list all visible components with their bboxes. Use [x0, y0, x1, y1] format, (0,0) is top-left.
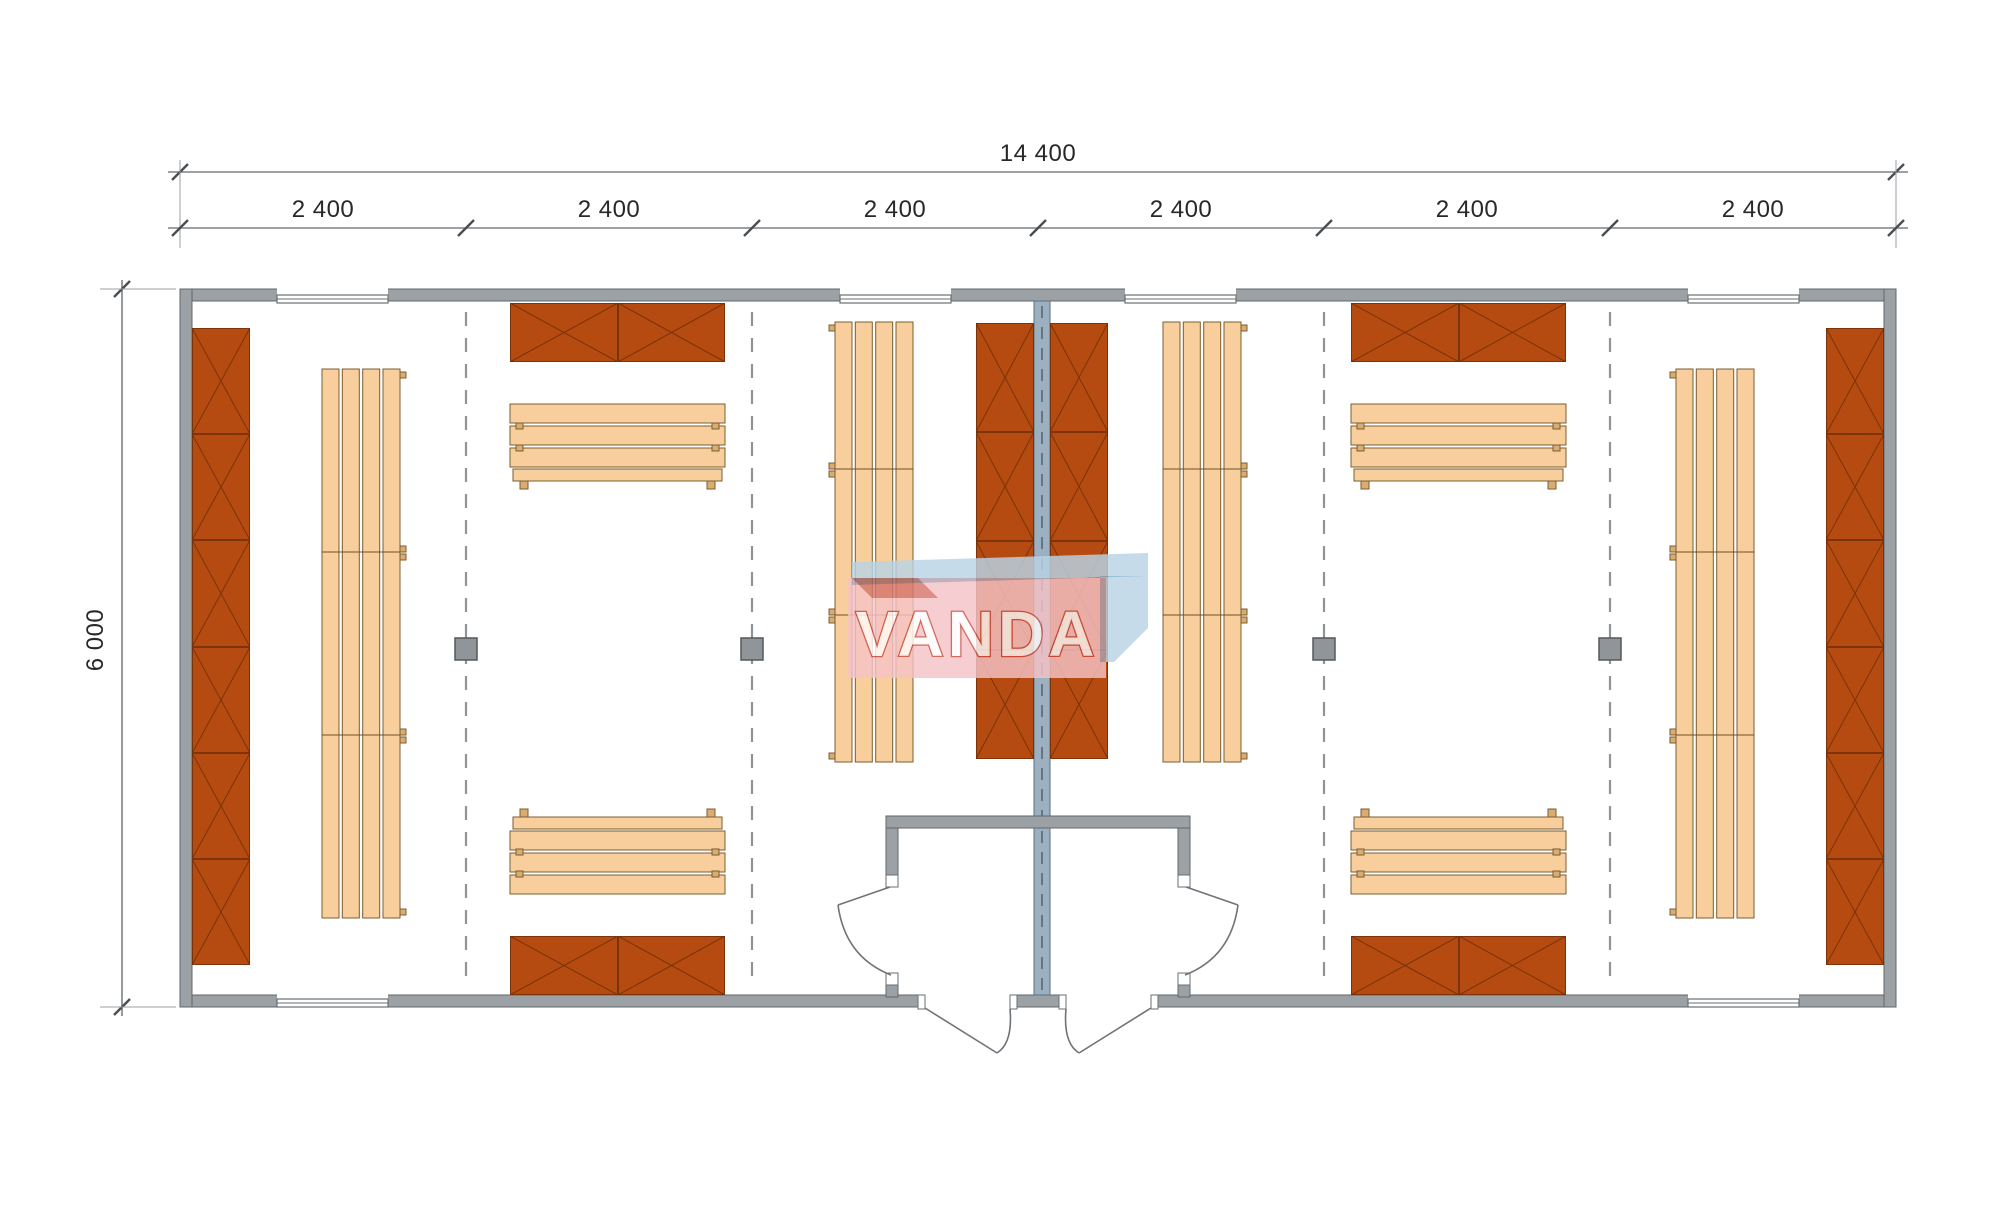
bench-module5-top: [1351, 404, 1566, 489]
post: [455, 638, 477, 660]
post: [741, 638, 763, 660]
module-dim-label: 2 400: [1722, 196, 1785, 223]
cabinet-module5-bottom: [1351, 936, 1566, 995]
post: [1313, 638, 1335, 660]
door-jamb: [918, 995, 925, 1009]
door-jamb: [1151, 995, 1158, 1009]
watermark-text: VANDA: [856, 598, 1099, 670]
dimension-overall-width: 14 400: [168, 140, 1908, 248]
module-dim-label: 2 400: [1150, 196, 1213, 223]
bench-module4: [1163, 322, 1247, 762]
door-jamb: [1059, 995, 1066, 1009]
door-jamb: [886, 973, 898, 985]
window: [1688, 994, 1799, 1009]
watermark-blue-block: [1100, 576, 1148, 662]
module-dim-label: 2 400: [864, 196, 927, 223]
bench-module5-bottom: [1351, 809, 1566, 894]
cabinet-partition-right: [1050, 323, 1108, 759]
bench-module1: [322, 369, 406, 918]
vestibule-top-wall: [886, 816, 1190, 828]
door-jamb: [1010, 995, 1017, 1009]
window: [277, 288, 388, 304]
cabinet-right-wall: [1826, 328, 1884, 965]
module-dim-label: 2 400: [1436, 196, 1499, 223]
cabinet-module5-top: [1351, 303, 1566, 362]
floor-plan-drawing: 14 400 2 400 2 400 2 400 2 400 2 400 2 4…: [0, 0, 2000, 1226]
dimension-modules: 2 400 2 400 2 400 2 400 2 400 2 400: [168, 196, 1908, 236]
wall-bottom: [180, 995, 1896, 1007]
bench-module3: [829, 322, 913, 762]
wall-right: [1884, 289, 1896, 1007]
vestibule-left-wall: [886, 828, 898, 875]
overall-width-label: 14 400: [1000, 140, 1076, 167]
cabinet-left-wall: [192, 328, 250, 965]
floor-plan-canvas: 14 400 2 400 2 400 2 400 2 400 2 400 2 4…: [0, 0, 2000, 1226]
post: [1599, 638, 1621, 660]
door-jamb: [886, 875, 898, 887]
room-door-right: [1185, 887, 1238, 975]
cabinet-module2-top: [510, 303, 725, 362]
entrance-door-right: [1066, 1008, 1151, 1053]
window: [1688, 288, 1799, 304]
door-jamb: [1178, 875, 1190, 887]
module-dim-label: 2 400: [292, 196, 355, 223]
module-dim-label: 2 400: [578, 196, 641, 223]
wall-left: [180, 289, 192, 1007]
entrance-door-left: [925, 1008, 1010, 1053]
wall-top: [180, 289, 1896, 301]
room-door-left: [838, 887, 891, 975]
watermark: VANDA: [848, 553, 1148, 678]
cabinet-module2-bottom: [510, 936, 725, 995]
window: [840, 288, 951, 304]
dimension-overall-depth: 6 000: [82, 280, 176, 1016]
window: [1125, 288, 1236, 304]
cabinet-partition-left: [976, 323, 1034, 759]
door-jamb: [1178, 973, 1190, 985]
vestibule-right-wall: [1178, 828, 1190, 875]
bench-module2-bottom: [510, 809, 725, 894]
bench-module6: [1670, 369, 1754, 918]
bench-module2-top: [510, 404, 725, 489]
overall-depth-label: 6 000: [82, 609, 109, 672]
window: [277, 994, 388, 1009]
